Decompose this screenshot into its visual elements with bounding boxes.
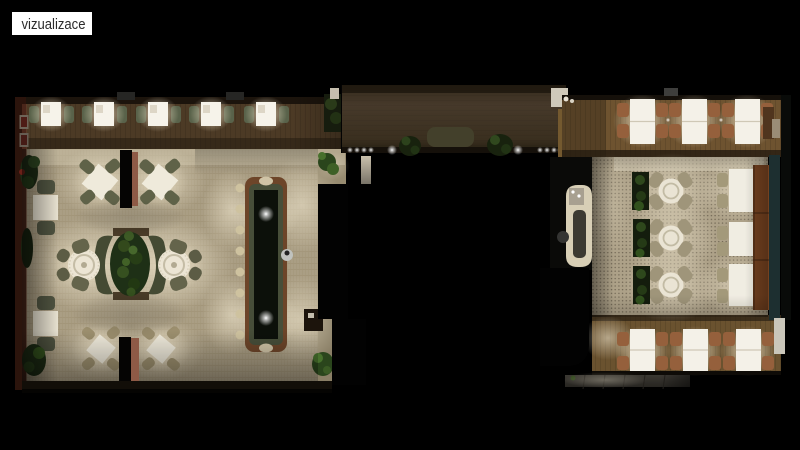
svg-text:vizualizace: vizualizace [22,17,86,33]
